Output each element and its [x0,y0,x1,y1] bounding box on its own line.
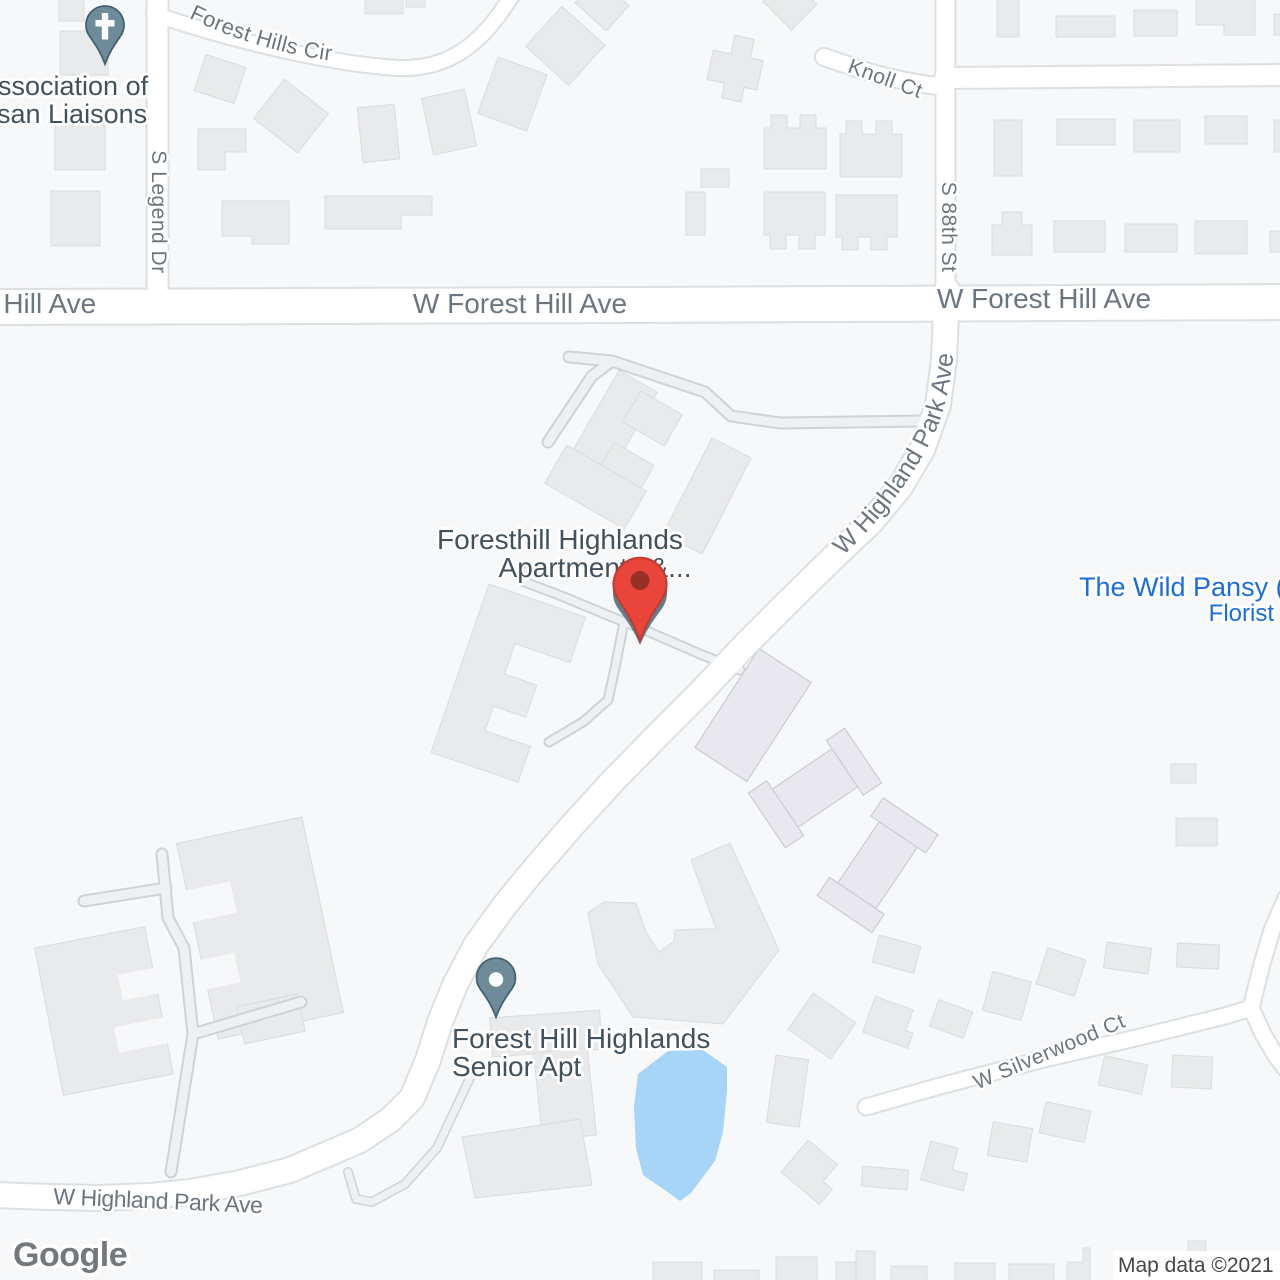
svg-text:Senior Apt: Senior Apt [452,1051,581,1082]
svg-text:Google: Google [13,1236,127,1274]
svg-text:Foresthill Highlands: Foresthill Highlands [437,524,683,555]
svg-text:S Legend Dr: S Legend Dr [147,150,170,273]
svg-text:W Forest Hill Ave: W Forest Hill Ave [0,288,96,319]
svg-text:Forest Hill Highlands: Forest Hill Highlands [452,1023,710,1054]
svg-text:Florist: Florist [1209,600,1275,627]
svg-text:san Liaisons: san Liaisons [0,99,147,129]
svg-text:S 88th St: S 88th St [937,182,960,273]
svg-text:Map data ©2021: Map data ©2021 [1118,1254,1274,1277]
svg-text:W Forest Hill Ave: W Forest Hill Ave [413,288,627,319]
svg-text:The Wild Pansy (: The Wild Pansy ( [1079,572,1280,602]
svg-text:Association of: Association of [0,71,149,101]
svg-text:W Forest Hill Ave: W Forest Hill Ave [937,283,1151,314]
